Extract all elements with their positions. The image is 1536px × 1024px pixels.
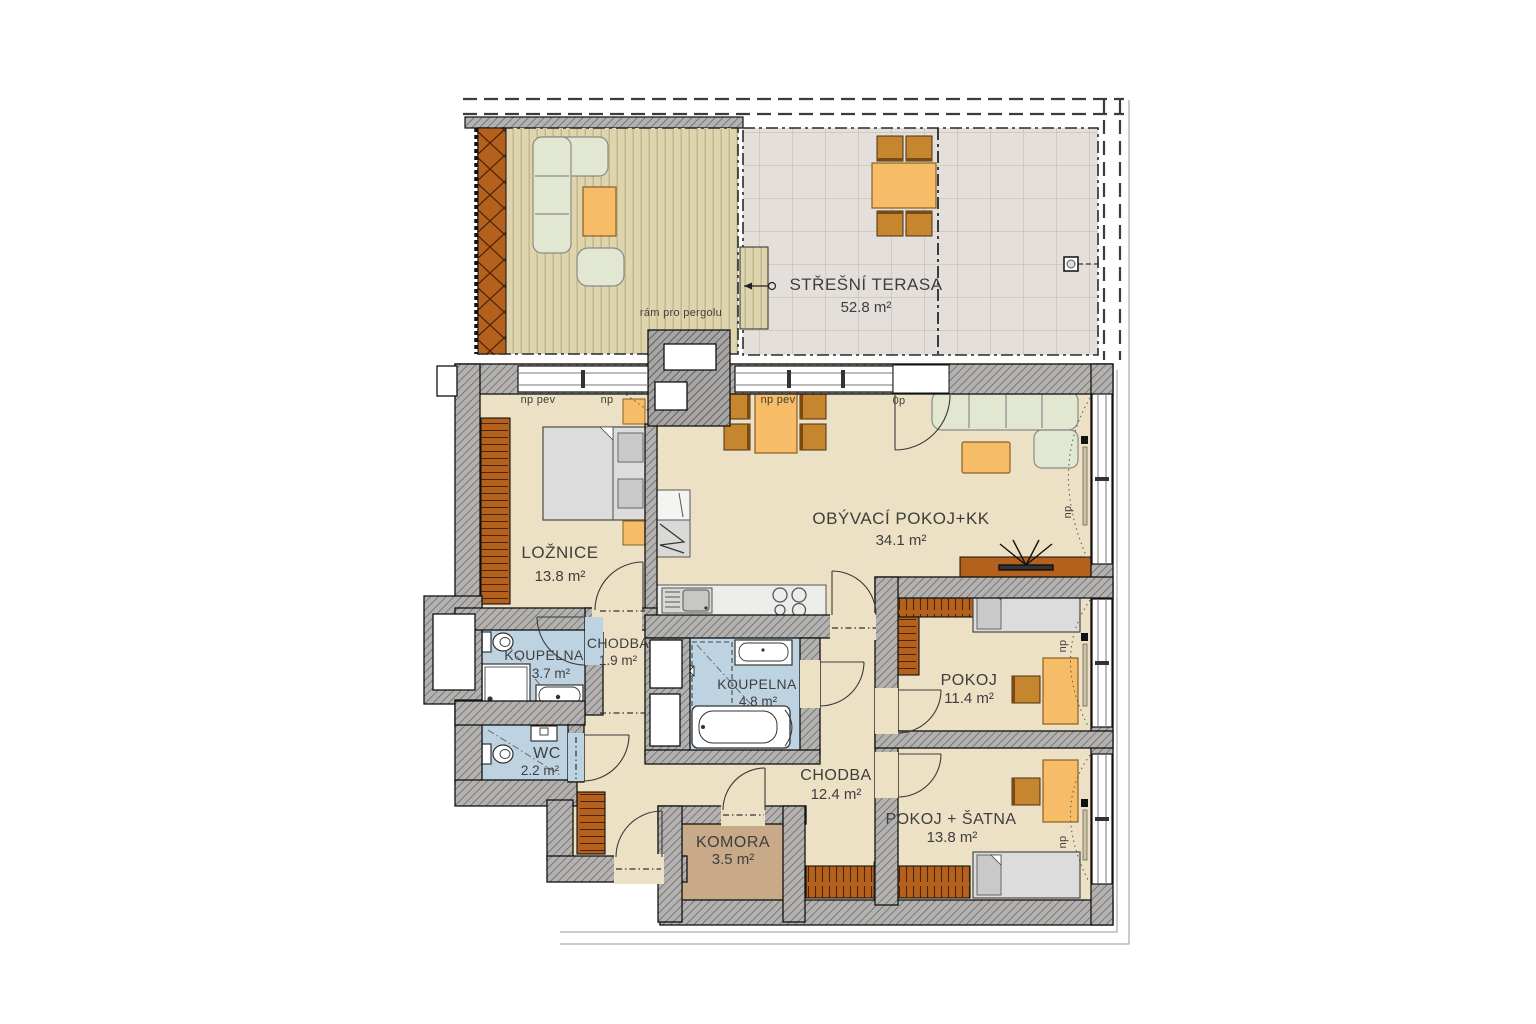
terrace-coffee-table [583,187,616,236]
label-wc-name: WC [533,745,561,762]
label-hall-small-name: CHODBA [587,635,650,651]
wardrobe [481,418,510,604]
desk-chair [1012,778,1040,805]
label-bedroom-name: LOŽNICE [521,543,598,562]
wall-storage-right [783,806,805,922]
nightstand [623,399,645,424]
label-room1-name: POKOJ [941,672,998,689]
desk [1043,658,1078,724]
label-wc-area: 2.2 m² [521,763,560,778]
label-window-openable-room1: np [1057,640,1069,653]
label-terrace-name: STŘEŠNÍ TERASA [789,275,942,294]
window-bedroom [518,366,648,392]
floor-plan-page: STŘEŠNÍ TERASA 52.8 m² rám pro pergolu O… [0,0,1536,1024]
shaft [650,640,682,688]
terrace-armchair [577,248,624,286]
wall-bath-large-bottom [645,750,820,764]
toilet-tank [482,632,491,652]
label-bedroom-area: 13.8 m² [535,568,586,585]
label-storage-name: KOMORA [696,834,770,851]
label-bath-small-name: KOUPELNA [504,647,584,663]
label-bath-small-area: 3.7 m² [532,666,571,681]
pillow [618,479,643,508]
kitchen-sink [662,588,712,613]
shaft [650,694,680,746]
label-door-zero: 0p [893,395,906,407]
nightstand [623,521,645,545]
window-room1-right [1092,599,1112,727]
pillow [618,433,643,462]
label-living-name: OBÝVACÍ POKOJ+KK [812,509,989,528]
wall-bath-wc-divider [455,701,585,725]
terrace-door-step [740,247,768,329]
coffee-table [962,442,1010,473]
window-living-top [735,366,893,392]
dining-chair [724,424,750,450]
label-bath-large-area: 4.8 m² [739,694,778,709]
dining-chair [800,424,826,450]
shaft [433,614,475,690]
label-hall-small-area: 1.9 m² [599,653,638,668]
label-living-area: 34.1 m² [876,532,927,549]
label-room2-area: 13.8 m² [927,829,978,846]
window-living-right [1092,394,1112,564]
wall-entry-left [547,800,573,860]
label-terrace-area: 52.8 m² [841,299,892,316]
desk-chair [1012,676,1040,703]
label-window-openable-room2: np [1057,836,1069,849]
label-window-fixed-bedroom: np pev [521,394,556,406]
shaft [655,382,687,410]
terrace-chair [877,211,903,236]
hall-cabinet [577,792,605,854]
terrace [465,117,1100,355]
pergola-trellis [478,128,506,354]
wall-end-window [437,366,457,396]
dining-chair [800,393,826,419]
label-room2-name: POKOJ + ŠATNA [885,809,1016,828]
label-room1-area: 11.4 m² [944,690,994,707]
label-hall-large-name: CHODBA [800,767,871,784]
shaft [664,344,716,370]
terrace-door-opening [893,365,949,393]
label-hall-large-area: 12.4 m² [811,786,862,803]
terrace-chair [877,136,903,161]
tall-cabinet [656,490,690,520]
wall-room1-room2 [875,731,1113,748]
label-bath-large-name: KOUPELNA [717,676,797,692]
window-room2-right [1092,754,1112,884]
floor-plan-canvas: STŘEŠNÍ TERASA 52.8 m² rám pro pergolu O… [0,0,1536,1024]
label-window-fixed-living: np pev [761,394,796,406]
toilet-tank [482,744,491,764]
wall-bedroom-right [645,424,657,612]
terrace-parapet [465,117,743,128]
label-pergola-note: rám pro pergolu [640,307,722,319]
terrace-chair [906,211,932,236]
terrace-dining-table [872,163,936,208]
label-storage-area: 3.5 m² [712,851,755,868]
terrace-chair [906,136,932,161]
wall-left [455,364,480,610]
label-window-openable-living: np [1062,506,1074,519]
terrace-tiles [743,128,1098,355]
label-window-openable-bedroom: np [601,394,614,406]
wall-living-room1 [875,577,1113,598]
